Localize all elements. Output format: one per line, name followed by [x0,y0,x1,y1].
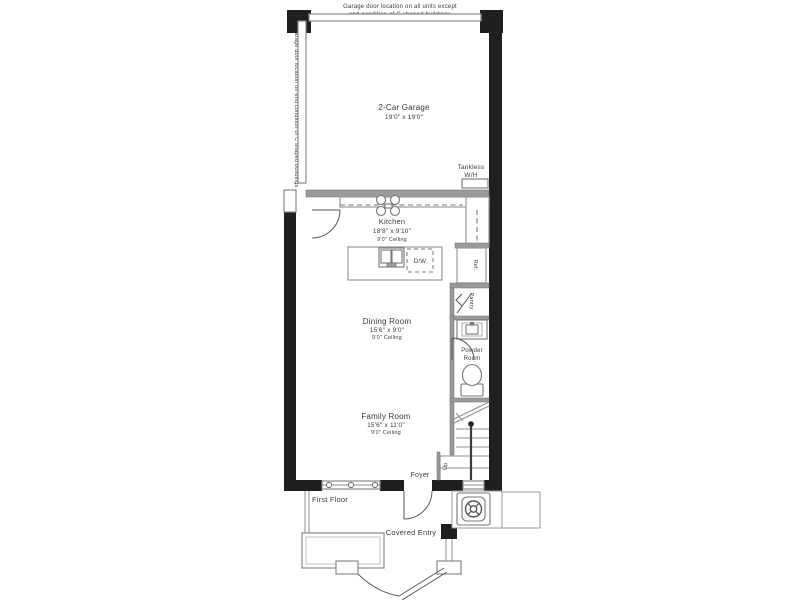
foyer-label: Foyer [411,472,430,479]
stair-treads [440,429,489,480]
island-sink [379,248,404,267]
pantry-label: Pantry [468,292,474,309]
entry-gate-arc [358,574,399,596]
entry-gate-leaf-1 [402,572,447,600]
floor-label: First Floor [312,495,348,504]
wall-left [284,212,296,491]
annotation-notes: Garage door location on all units except… [293,4,457,188]
family-label: Family Room [361,412,410,421]
covered-entry-label: Covered Entry [386,528,437,537]
powder-label-line2: Room [464,356,481,362]
powder-room: Powder Room [450,316,489,402]
pantry-arrow-icon [456,294,462,306]
garage-door-opening [309,14,481,21]
front-door [404,491,432,519]
garage: 2-Car Garage 19'0" x 19'0" [298,14,481,183]
dishwasher-label: D/W [414,259,426,265]
garage-side-door-wall [298,21,306,183]
tankless-label-line1: Tankless [458,164,485,171]
front-door-arc [404,491,432,519]
refrigerator [457,248,486,283]
family-room: Family Room 15'6" x 11'0" 9'0" Ceiling [361,412,410,436]
stair-cut-line-1 [452,402,489,420]
powder-label-line1: Powder [461,348,483,354]
ref-pantry-nook: Ref. Pantry [450,243,489,316]
dining-ceiling: 9'0" Ceiling [372,335,402,341]
stair-foyer-wall-stub [437,452,440,480]
wall-corner-top-right [480,10,503,33]
kitchen-label: Kitchen [379,217,405,226]
covered-entry: Covered Entry [302,491,540,600]
kitchen-dims: 18'8" x 9'10" [373,228,412,235]
toilet [461,365,483,397]
powder-wall-bottom [450,398,489,402]
ceiling-light-fixture [457,493,490,525]
entry-gate-jamb [437,561,461,574]
refrigerator-label: Ref. [472,260,478,271]
garage-entry-jamb [284,190,296,212]
entry-slab-right [502,492,540,528]
garage-dims: 19'0" x 19'0" [385,114,424,121]
water-heater-unit [462,179,488,188]
wall-bottom-2 [380,480,404,491]
top-note-line1: Garage door location on all units except [343,4,457,10]
stair-rail-newel [468,421,474,427]
stair-wall-left [450,402,454,455]
entry-post-left [336,561,358,574]
dining-room: Dining Room 15'6" x 9'0" 9'0" Ceiling [363,317,412,341]
water-heater: Tankless W/H [458,164,488,188]
stairs-up-label: Up [443,463,449,470]
garage-entry-door-arc [312,210,340,238]
powder-vanity [457,320,487,339]
family-dims: 15'6" x 11'0" [367,422,405,429]
powder-wall-top [450,316,489,320]
staircase: Up [437,402,489,480]
nook-wall-bottom [450,283,489,288]
pantry-wall-left [450,288,454,316]
wall-bottom-1 [284,480,322,491]
wall-right [489,31,502,528]
wall-bottom-4 [484,480,502,491]
dining-dims: 15'6" x 9'0" [370,327,405,334]
floor-plan: Garage door location on all units except… [0,0,800,600]
garage-label: 2-Car Garage [378,103,430,112]
dining-label: Dining Room [363,317,412,326]
family-ceiling: 9'0" Ceiling [371,430,401,436]
nook-wall-top [455,243,489,248]
kitchen-ceiling: 9'0" Ceiling [377,237,407,243]
entry-gate-leaf-2 [399,568,444,596]
tankless-label-line2: W/H [464,172,477,179]
wall-bottom-3 [432,480,463,491]
